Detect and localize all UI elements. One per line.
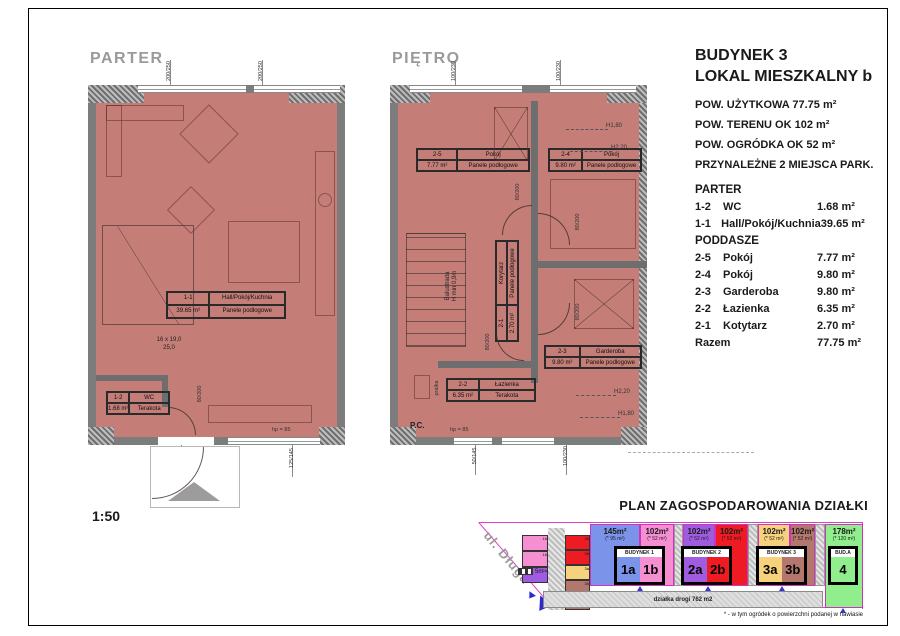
parking-space: 1b	[522, 535, 548, 551]
plot-garden-area: (* 52 m²)	[759, 536, 789, 542]
unit-2b: 2b	[707, 557, 730, 582]
wall-hatch	[319, 427, 345, 445]
parter-title: PARTER	[90, 50, 164, 68]
h180-label-bottom: H1,80	[618, 411, 634, 417]
scale-bar	[518, 568, 533, 575]
parking-space: 3a	[565, 565, 590, 580]
room-name: Hall/Pokój/Kuchnia	[209, 292, 285, 305]
attic-height-line	[570, 151, 612, 152]
hp-label: hp = 85	[272, 427, 291, 433]
balustrade-line2: H min 0,9m	[452, 271, 458, 302]
plot-area: 102m²	[641, 525, 673, 536]
wardrobe	[494, 107, 528, 161]
scale-bar-label: 5m	[535, 569, 543, 575]
corridor-room-label: 2-1Korytarz 2.70 m²Panele podłogowe	[495, 240, 519, 342]
room-id: 2-2	[447, 379, 479, 390]
parter-window-dim: 200/250	[166, 57, 172, 85]
door-arc	[538, 303, 570, 335]
row-area: 2.70 m²	[817, 318, 875, 335]
room-id: 2-5	[417, 149, 457, 160]
wall-hatch	[88, 85, 144, 103]
room-label-2-2: 2-2Łazienka 6.35 m²Terakota	[446, 378, 536, 402]
building-1-box: BUDYNEK 1 1a 1b	[614, 546, 665, 585]
room-floor: Panele podłogowe	[507, 241, 518, 305]
total-label: Razem	[695, 335, 817, 352]
total-value: 77.75 m²	[817, 335, 875, 352]
plot-garden-area: (* 52 m²)	[641, 536, 673, 542]
building-3-box: BUDYNEK 3 3a 3b	[756, 546, 807, 585]
unit-1a: 1a	[617, 557, 640, 582]
plot-area: 102m²	[759, 525, 789, 536]
row-name: Łazienka	[723, 301, 817, 318]
window	[254, 85, 340, 93]
room-area: 1.68 m²	[107, 403, 129, 414]
balustrade-line1: Balustrada	[445, 272, 451, 301]
room-name: Łazienka	[479, 379, 535, 390]
room-name: Garderoba	[580, 346, 641, 357]
parter-floor-plan: 16 x 19,0 25,0 80/200 1-1Hall/Pokój/Kuch…	[88, 85, 345, 445]
legend-panel: BUDYNEK 3 LOKAL MIESZKALNY b POW. UŻYTKO…	[695, 45, 875, 352]
wc-room-label: 1-2WC 1.68 m²Terakota	[106, 391, 170, 415]
row-area: 39.65 m²	[821, 216, 875, 233]
building-name: BUD.A	[831, 549, 855, 557]
building-name: BUDYNEK 3	[759, 549, 804, 557]
door-dim: 80/200	[485, 330, 491, 354]
pc-label: P.C.	[410, 421, 425, 430]
legend-spec: POW. TERENU OK 102 m²	[695, 115, 875, 135]
interior-wall	[531, 261, 647, 268]
window	[550, 85, 636, 93]
schedule-row: 2-2 Łazienka 6.35 m²	[695, 301, 875, 318]
wall-hatch	[621, 427, 647, 445]
legend-unit: LOKAL MIESZKALNY b	[695, 66, 875, 87]
legend-spec: PRZYNALEŻNE 2 MIEJSCA PARK.	[695, 155, 875, 175]
plot-garden-area: (* 52 m²)	[791, 536, 814, 542]
unit-2a: 2a	[684, 557, 707, 582]
row-area: 7.77 m²	[817, 250, 875, 267]
pietro-window-dim: 100/230	[556, 57, 562, 85]
plot-garden-area: (* 52 m²)	[716, 536, 747, 542]
room-area: 6.35 m²	[447, 390, 479, 401]
stairs-note-line1: 16 x 19,0	[157, 337, 182, 343]
parking-space: 2b	[565, 550, 590, 565]
door-arc	[502, 205, 532, 235]
pietro-window-dim: 100/230	[451, 57, 457, 85]
room-name: WC	[129, 392, 169, 403]
door-opening	[158, 437, 214, 445]
site-footnote: * - w tym ogródek o powierzchni podanej …	[645, 612, 863, 618]
site-scale-marker: 5m	[518, 568, 543, 575]
room-area: 9.80 m²	[549, 160, 582, 171]
door-arc	[168, 407, 196, 435]
h220-label-bottom: H2,20	[614, 389, 630, 395]
plot-separator	[815, 524, 825, 586]
row-id: 2-5	[695, 250, 723, 267]
row-id: 1-1	[695, 216, 721, 233]
furniture-rug	[179, 104, 238, 163]
attic-height-line	[580, 417, 620, 418]
wall-hatch	[88, 427, 114, 445]
wc-door-dim: 80/200	[197, 382, 203, 406]
road-label: działka drogi 762 m2	[654, 597, 713, 603]
unit-3a: 3a	[759, 557, 782, 582]
legend-spec: POW. UŻYTKOWA 77.75 m²	[695, 95, 875, 115]
plot-area: 102m²	[684, 525, 714, 536]
washing-machine	[414, 375, 430, 399]
door-dim: 80/200	[515, 180, 521, 204]
unit-4: 4	[831, 557, 855, 582]
row-name: WC	[723, 199, 817, 216]
window	[502, 437, 554, 445]
room-floor: Terakota	[479, 390, 535, 401]
room-floor: Panele podłogowe	[209, 305, 285, 318]
row-name: Kotytarz	[723, 318, 817, 335]
schedule-section-poddasze: PODDASZE	[695, 233, 875, 250]
window	[410, 85, 522, 93]
stairs-note: 16 x 19,0 25,0	[140, 336, 198, 352]
pralka-label: pralka	[434, 373, 440, 403]
scale-label: 1:50	[92, 508, 120, 524]
kitchen-counter	[315, 151, 335, 316]
plot-garden-area: (* 52 m²)	[684, 536, 714, 542]
schedule-row: 2-1 Kotytarz 2.70 m²	[695, 318, 875, 335]
interior-wall	[531, 101, 538, 261]
parking-space: 2b	[565, 535, 590, 550]
schedule-row: 2-3 Garderoba 9.80 m²	[695, 284, 875, 301]
wc-wall	[96, 375, 168, 381]
room-area: 39.65 m²	[167, 305, 209, 318]
room-label-2-3: 2-3Garderoba 9.80 m²Panele podłogowe	[544, 345, 642, 369]
row-area: 6.35 m²	[817, 301, 875, 318]
row-id: 1-2	[695, 199, 723, 216]
plot-garden-area: (* 95 m²)	[591, 536, 639, 542]
attic-height-line	[576, 395, 616, 396]
row-name: Garderoba	[723, 284, 817, 301]
access-road-band: działka drogi 762 m2	[543, 591, 823, 608]
bottom-dim: 50/145	[472, 442, 478, 470]
building-2-box: BUDYNEK 2 2a 2b	[681, 546, 732, 585]
room-area: 9.80 m²	[545, 357, 580, 368]
parking-column-left: 1b 1b 2a	[522, 535, 548, 583]
room-floor: Panele podłogowe	[582, 160, 641, 171]
schedule-row: 1-1 Hall/Pokój/Kuchnia 39.65 m²	[695, 216, 875, 233]
plot-area: 102m²	[716, 525, 747, 536]
room-floor: Terakota	[129, 403, 169, 414]
unit-1b: 1b	[640, 557, 663, 582]
row-name: Pokój	[723, 267, 817, 284]
room-id: 1-1	[167, 292, 209, 305]
plot-area: 178m²	[826, 525, 862, 536]
room-id: 2-3	[545, 346, 580, 357]
schedule-row: 1-2 WC 1.68 m²	[695, 199, 875, 216]
legend-building: BUDYNEK 3	[695, 45, 875, 66]
balustrade-label: Balustrada H min 0,9m	[445, 240, 459, 332]
room-area: 7.77 m²	[417, 160, 457, 171]
row-id: 2-4	[695, 267, 723, 284]
hall-room-label: 1-1Hall/Pokój/Kuchnia 39.65 m²Panele pod…	[166, 291, 286, 319]
roof-projection-line	[628, 452, 754, 453]
site-plan: PLAN ZAGOSPODAROWANIA DZIAŁKI ul. Długa …	[465, 498, 872, 626]
pietro-floor-plan: Balustrada H min 0,9m 2-1Korytarz 2.70 m…	[390, 85, 647, 445]
room-floor: Panele podłogowe	[580, 357, 641, 368]
row-name: Hall/Pokój/Kuchnia	[721, 216, 821, 233]
room-id: 1-2	[107, 392, 129, 403]
row-id: 2-2	[695, 301, 723, 318]
row-area: 9.80 m²	[817, 267, 875, 284]
h180-label: H1,80	[606, 123, 622, 129]
window	[138, 85, 246, 93]
schedule-row: 2-5 Pokój 7.77 m²	[695, 250, 875, 267]
plot-boundary	[479, 522, 863, 523]
row-id: 2-1	[695, 318, 723, 335]
plot-area: 145m²	[591, 525, 639, 536]
bottom-dim: 100/230	[563, 442, 569, 470]
row-id: 2-3	[695, 284, 723, 301]
kitchen-sink	[318, 193, 332, 207]
site-plan-title: PLAN ZAGOSPODAROWANIA DZIAŁKI	[619, 498, 868, 513]
bed	[550, 179, 636, 249]
h220-label: H2,20	[611, 145, 627, 151]
entrance-steps-arrow	[168, 482, 220, 501]
building-name: BUDYNEK 2	[684, 549, 729, 557]
schedule-row: 2-4 Pokój 9.80 m²	[695, 267, 875, 284]
legend-spec: POW. OGRÓDKA OK 52 m²	[695, 135, 875, 155]
room-floor: Panele podłogowe	[457, 160, 529, 171]
plot-garden-area: (* 120 m²)	[826, 536, 862, 542]
interior-wall	[438, 361, 538, 368]
window	[228, 437, 320, 445]
wardrobe	[574, 279, 634, 329]
parking-space: 1b	[522, 551, 548, 567]
building-a-box: BUD.A 4	[828, 546, 858, 585]
room-name: Korytarz	[496, 241, 507, 305]
unit-3b: 3b	[782, 557, 805, 582]
plot-area: 102m²	[791, 525, 814, 536]
door-arc	[496, 333, 524, 361]
parter-window-dim: 200/250	[258, 57, 264, 85]
cabinet	[208, 405, 312, 423]
row-area: 1.68 m²	[817, 199, 875, 216]
building-name: BUDYNEK 1	[617, 549, 662, 557]
attic-height-line	[566, 129, 608, 130]
hp-label: hp = 85	[450, 427, 469, 433]
stairs-note-line2: 25,0	[163, 345, 175, 351]
row-name: Pokój	[723, 250, 817, 267]
schedule-section-parter: PARTER	[695, 182, 875, 199]
furniture-sofa	[106, 105, 122, 177]
schedule-total-row: Razem 77.75 m²	[695, 335, 875, 352]
row-area: 9.80 m²	[817, 284, 875, 301]
furniture-table	[228, 221, 300, 283]
bottom-window-dim: 125/145	[289, 444, 295, 472]
